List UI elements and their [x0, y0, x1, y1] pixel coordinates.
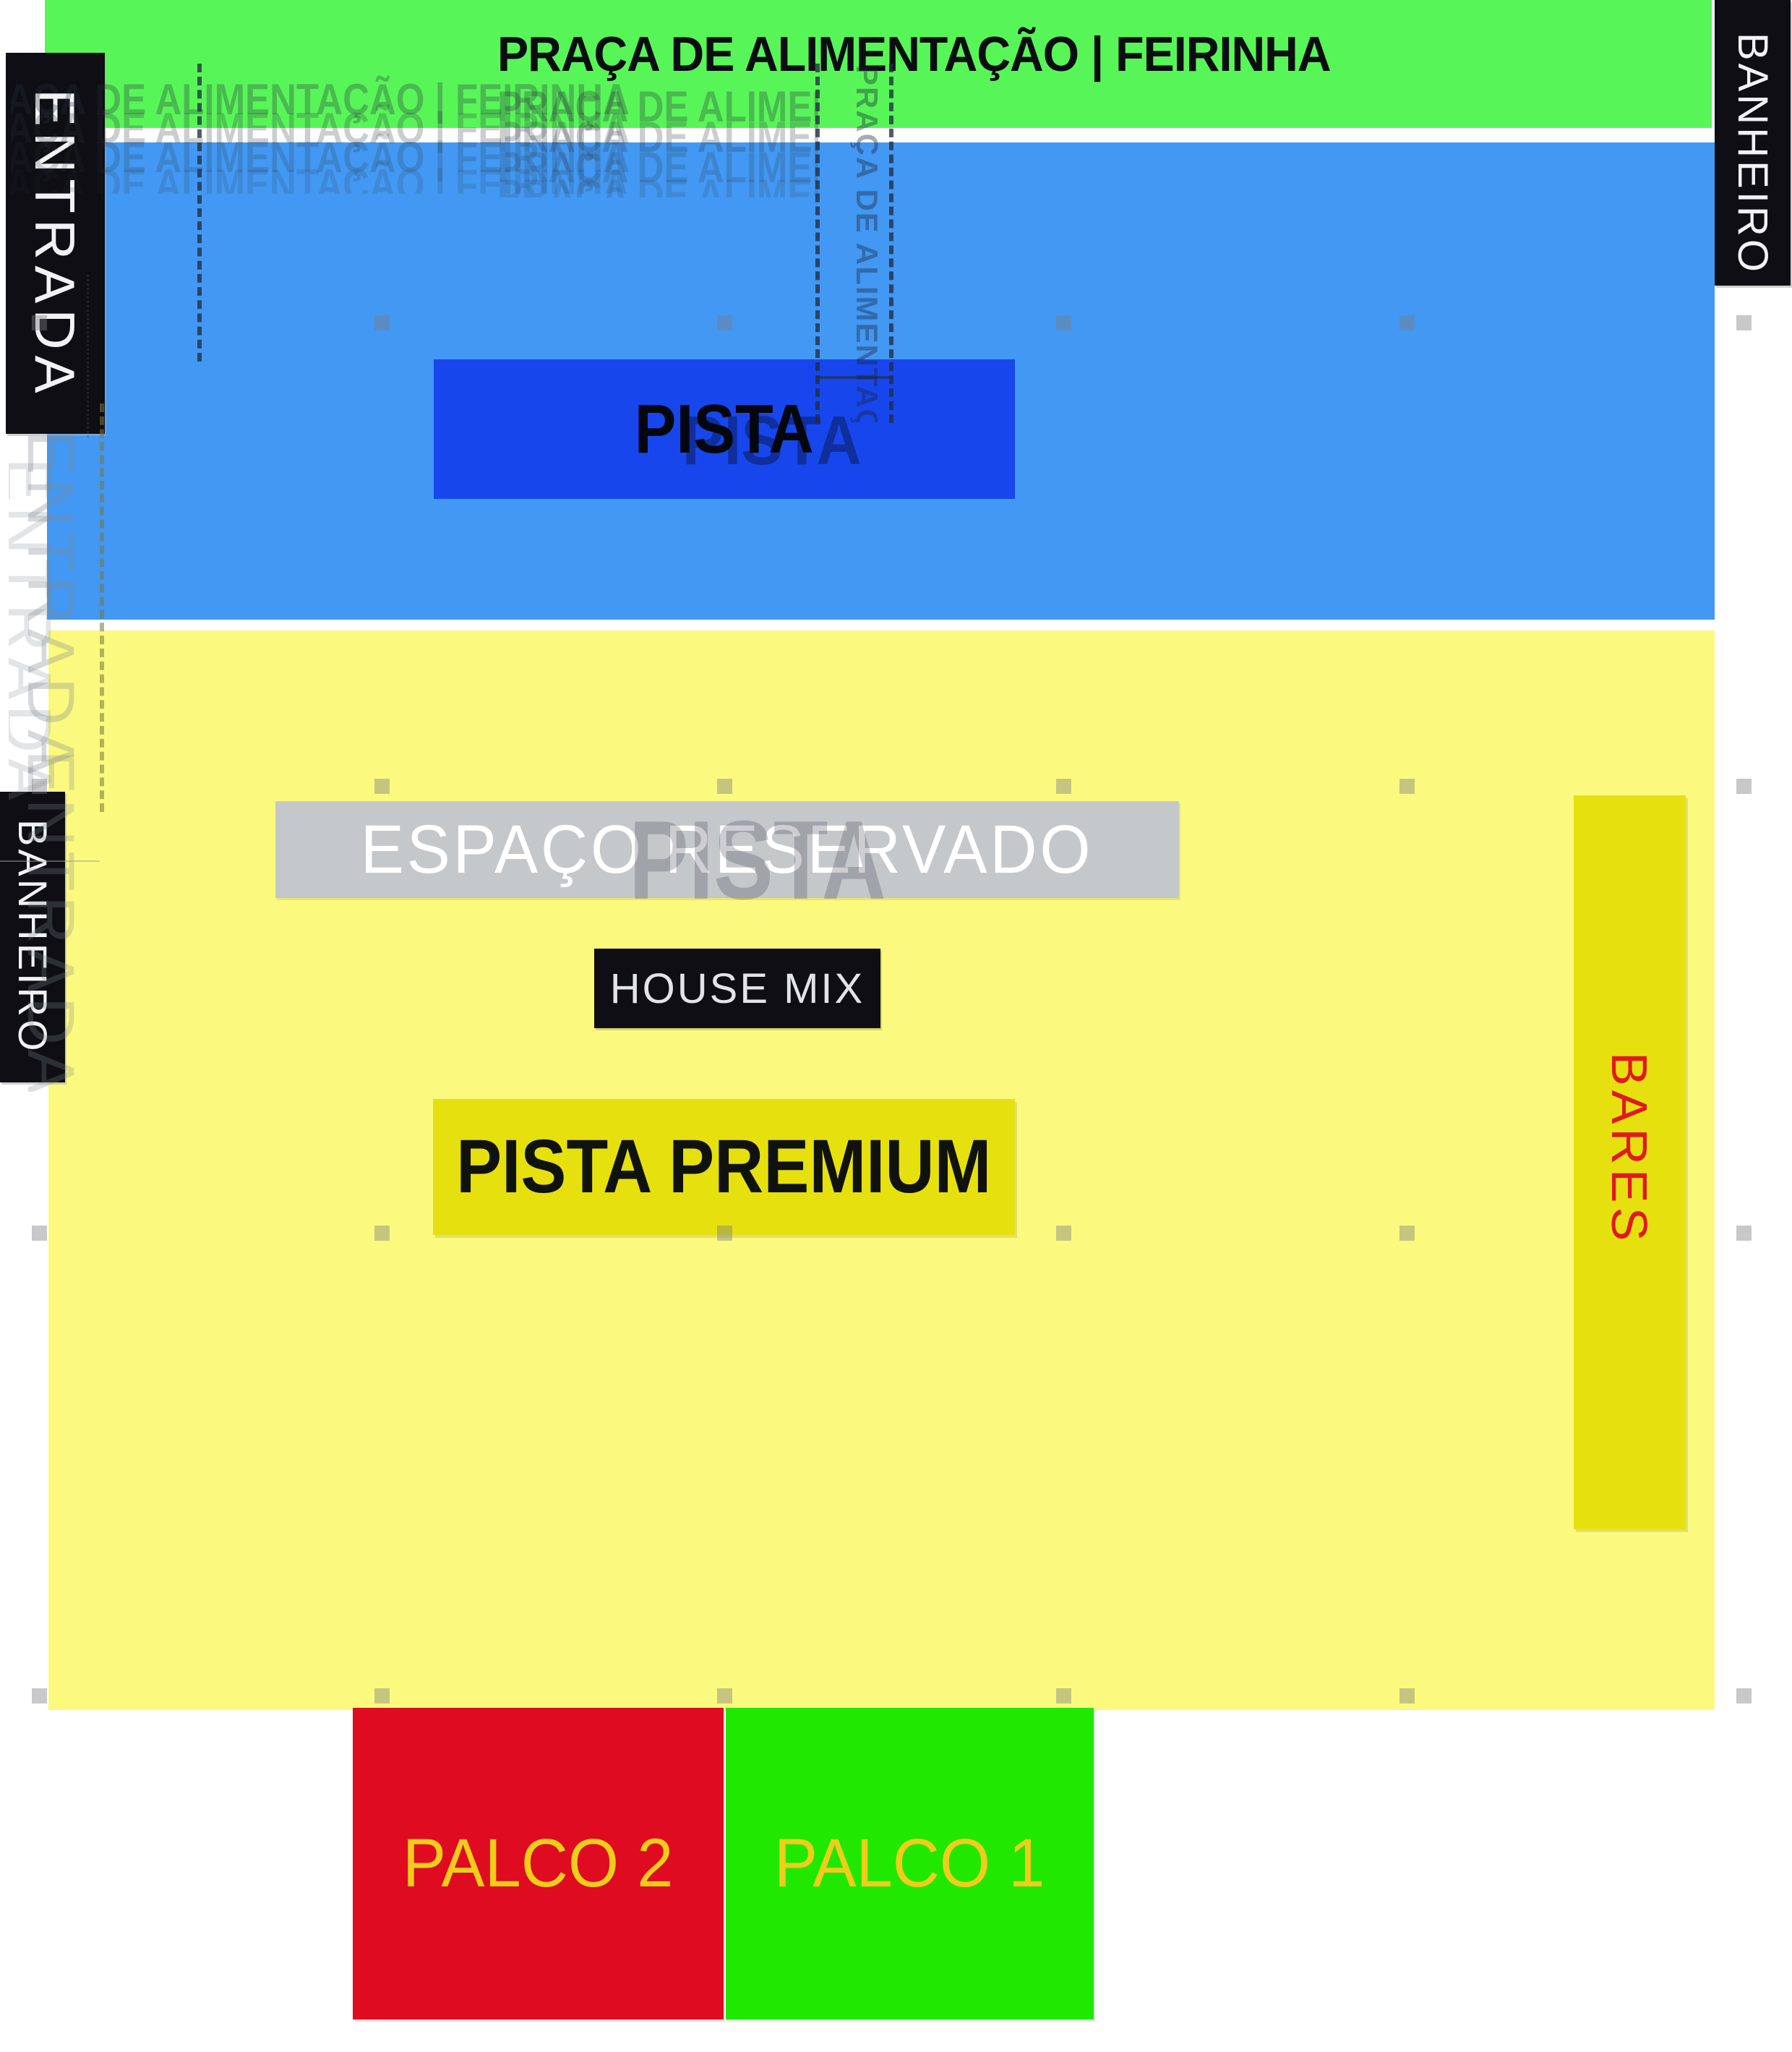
selection-handle	[374, 1688, 390, 1703]
selection-handle	[1736, 779, 1752, 794]
selection-handle	[1056, 1688, 1071, 1703]
selection-handle	[717, 779, 732, 794]
zone-pista: PISTA PISTA	[434, 359, 1015, 499]
selection-handle	[1056, 315, 1071, 330]
ghost-title-row: PRAÇA DE ALIMENTAÇÃO | FEIRINHA	[497, 174, 818, 197]
selection-handle	[1736, 1688, 1752, 1703]
ghost-rotated-title: PRAÇA DE ALIMENTAÇÃO | FEIRINHA	[815, 65, 891, 422]
ghost-rotated-title-text: PRAÇA DE ALIMENTAÇÃO | FEIRINHA	[852, 65, 882, 422]
zone-pista-label: PISTA	[635, 390, 814, 469]
zone-bars-label: BARES	[1604, 1052, 1655, 1245]
selection-handle	[1399, 1688, 1415, 1703]
guide-dashed-line	[100, 403, 104, 812]
zone-stage-2-label: PALCO 2	[403, 1824, 674, 1903]
selection-handle	[717, 315, 732, 330]
selection-handle	[1399, 315, 1415, 330]
zone-toilet-top-right-label: BANHEIRO	[1731, 33, 1773, 275]
selection-handle	[1399, 1226, 1415, 1241]
zone-stage-1: PALCO 1	[726, 1708, 1094, 2019]
selection-handle	[1056, 1226, 1071, 1241]
selection-handle	[32, 1688, 47, 1703]
zone-pista-premium-label: PISTA PREMIUM	[456, 1124, 991, 1210]
zone-toilet-top-right: BANHEIRO	[1715, 0, 1791, 286]
selection-handle	[32, 1226, 47, 1241]
zone-stage-1-label: PALCO 1	[774, 1824, 1045, 1903]
ghost-title-rows-center: PRAÇA DE ALIMENTAÇÃO | FEIRINHA PRAÇA DE…	[497, 78, 818, 197]
selection-handle	[1736, 1226, 1752, 1241]
selection-handle	[1736, 315, 1752, 330]
guide-dotted-line	[87, 275, 89, 437]
ghost-pista-large: PISTA	[629, 804, 886, 916]
selection-handle	[1056, 779, 1071, 794]
ghost-entrance-column: ENTRADA ENTRADA ENTRADA	[9, 423, 88, 1092]
selection-handle	[1399, 779, 1415, 794]
venue-map-canvas: PRAÇA DE ALIMENTAÇÃO | FEIRINHA PRAÇA DE…	[0, 0, 1792, 2052]
ghost-entrance-text: ENTRADA	[17, 750, 84, 1092]
selection-handle	[717, 1688, 732, 1703]
selection-handle	[374, 779, 390, 794]
selection-handle	[717, 1226, 732, 1241]
zone-house-mix: HOUSE MIX	[594, 949, 880, 1028]
selection-handle	[374, 315, 390, 330]
selection-handle	[32, 315, 47, 330]
zone-stage-2: PALCO 2	[353, 1708, 724, 2019]
zone-pista-premium: PISTA PREMIUM	[433, 1099, 1015, 1235]
selection-handle	[32, 779, 47, 794]
zone-bars: BARES	[1574, 795, 1686, 1529]
selection-handle	[374, 1226, 390, 1241]
zone-house-mix-label: HOUSE MIX	[610, 965, 865, 1013]
